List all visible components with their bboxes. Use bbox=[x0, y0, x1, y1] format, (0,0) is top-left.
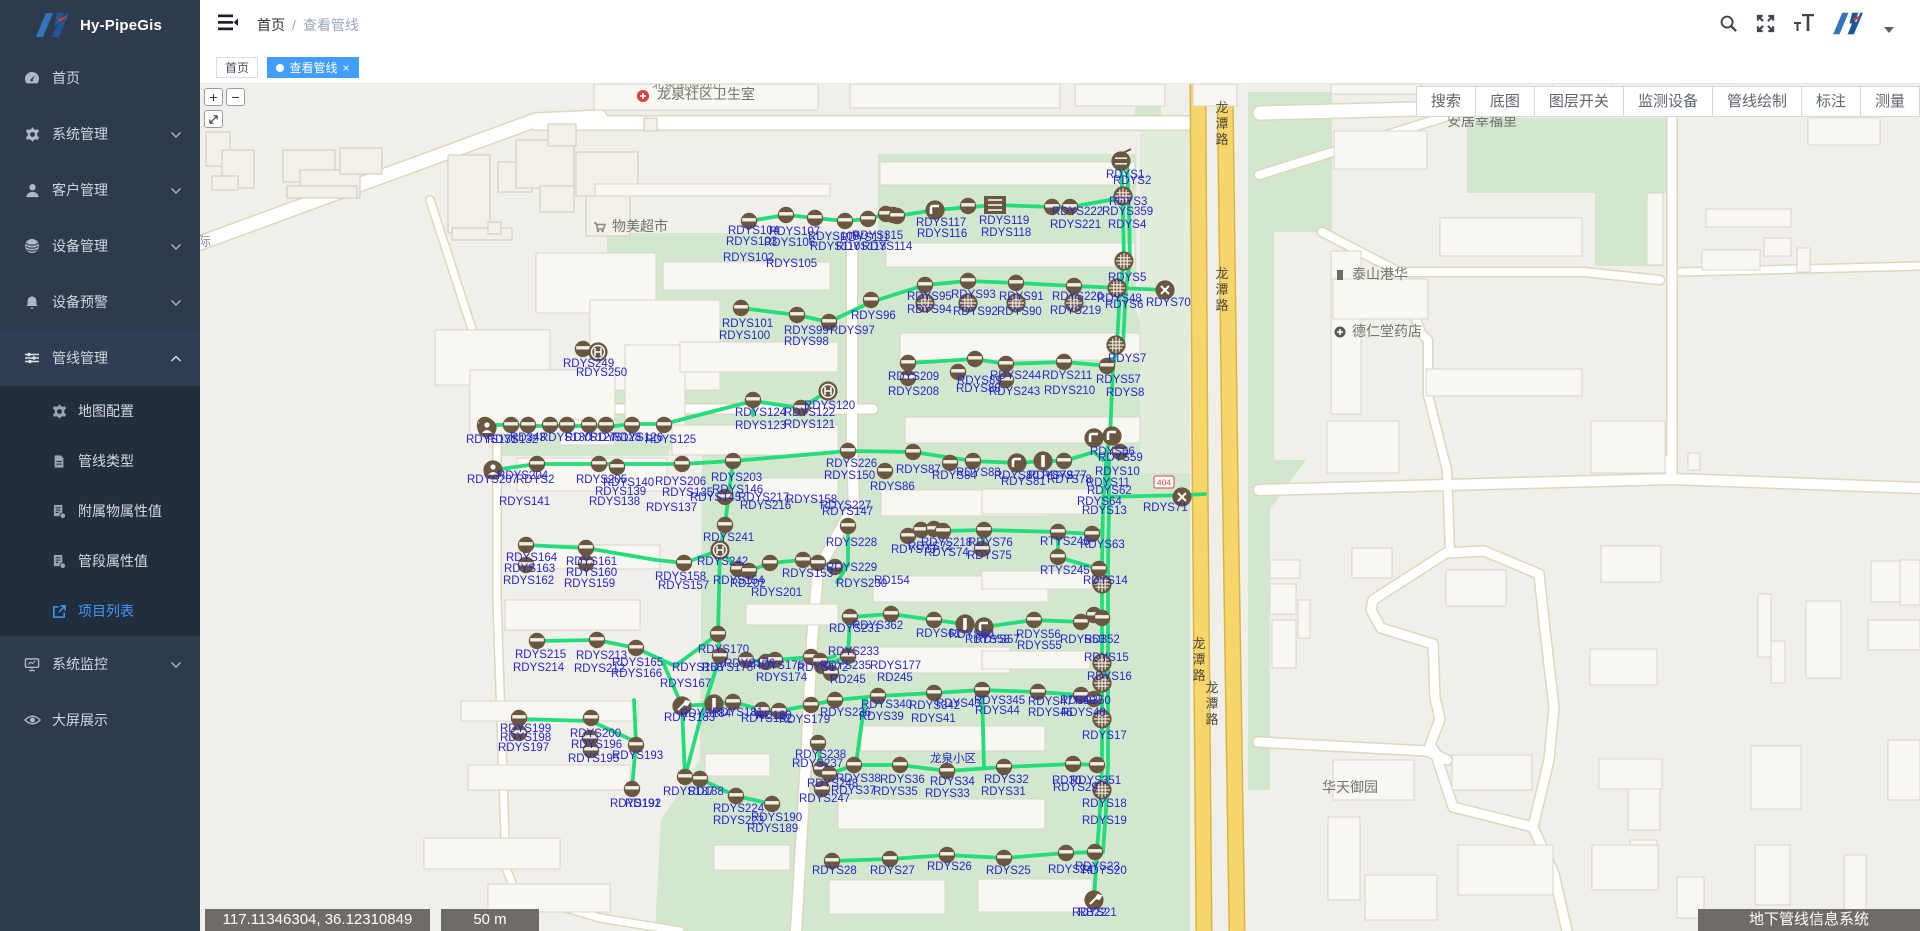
svg-text:RDYS170: RDYS170 bbox=[698, 644, 749, 656]
svg-text:RDYS91: RDYS91 bbox=[999, 291, 1044, 303]
svg-text:RDYS189: RDYS189 bbox=[747, 823, 798, 835]
svg-text:RDYS193: RDYS193 bbox=[612, 750, 663, 762]
svg-text:RDYS96: RDYS96 bbox=[851, 310, 896, 322]
svg-text:RDYS116: RDYS116 bbox=[917, 228, 967, 240]
svg-text:RDYS166: RDYS166 bbox=[611, 668, 662, 680]
svg-text:华天御园: 华天御园 bbox=[1322, 779, 1378, 795]
svg-text:RDYS362: RDYS362 bbox=[852, 620, 903, 632]
svg-text:RDYS27: RDYS27 bbox=[870, 865, 915, 877]
svg-text:RDYS244: RDYS244 bbox=[990, 370, 1042, 382]
svg-text:RDYS228: RDYS228 bbox=[826, 537, 877, 549]
svg-text:RDYS35: RDYS35 bbox=[873, 786, 918, 798]
svg-text:RDYS63: RDYS63 bbox=[1080, 539, 1125, 551]
svg-text:RDYS203: RDYS203 bbox=[711, 472, 762, 484]
svg-text:RD154: RD154 bbox=[874, 575, 910, 587]
svg-text:物美超市: 物美超市 bbox=[612, 218, 668, 234]
svg-text:RDYS220: RDYS220 bbox=[1052, 291, 1103, 303]
svg-text:龙: 龙 bbox=[1192, 636, 1205, 651]
svg-text:泰山港华: 泰山港华 bbox=[1352, 266, 1408, 282]
svg-text:RDYS241: RDYS241 bbox=[703, 532, 754, 544]
svg-text:RDYS6: RDYS6 bbox=[1105, 299, 1143, 311]
svg-text:RDYS92: RDYS92 bbox=[953, 306, 998, 318]
svg-text:RDYS359: RDYS359 bbox=[1102, 206, 1153, 218]
svg-text:RDYS2: RDYS2 bbox=[1113, 175, 1151, 187]
svg-text:RDYS214: RDYS214 bbox=[513, 662, 565, 674]
svg-text:RDYS121: RDYS121 bbox=[784, 419, 835, 431]
svg-text:RDYS138: RDYS138 bbox=[589, 496, 640, 508]
svg-text:RDYS157: RDYS157 bbox=[658, 580, 709, 592]
svg-text:RDYS118: RDYS118 bbox=[981, 227, 1031, 239]
svg-text:RDYS55: RDYS55 bbox=[1017, 640, 1062, 652]
svg-text:RDYS36: RDYS36 bbox=[880, 774, 925, 786]
svg-text:RDYS177: RDYS177 bbox=[870, 660, 921, 672]
svg-text:RDYS201: RDYS201 bbox=[751, 587, 802, 599]
svg-text:RDYS229: RDYS229 bbox=[826, 562, 877, 574]
svg-text:际: 际 bbox=[200, 234, 211, 249]
svg-text:潭: 潭 bbox=[1192, 652, 1205, 667]
svg-text:RDYS147: RDYS147 bbox=[822, 506, 873, 518]
svg-text:RDYS197: RDYS197 bbox=[498, 742, 549, 754]
svg-text:潭: 潭 bbox=[1215, 282, 1228, 297]
svg-text:RDYS226: RDYS226 bbox=[826, 458, 877, 470]
svg-text:RDYS97: RDYS97 bbox=[830, 325, 875, 337]
svg-text:RDYS77: RDYS77 bbox=[1042, 470, 1087, 482]
svg-text:路: 路 bbox=[1205, 712, 1218, 727]
svg-text:路: 路 bbox=[1192, 668, 1205, 683]
svg-text:RDYS210: RDYS210 bbox=[1044, 385, 1095, 397]
svg-text:RDYS44: RDYS44 bbox=[975, 705, 1020, 717]
svg-text:RDYS38: RDYS38 bbox=[836, 773, 881, 785]
svg-text:RDYS219: RDYS219 bbox=[1050, 305, 1101, 317]
svg-text:RDYS172: RDYS172 bbox=[797, 662, 848, 674]
svg-text:RDYS122: RDYS122 bbox=[784, 407, 835, 419]
svg-text:RDYS13: RDYS13 bbox=[1082, 505, 1127, 517]
svg-text:RDYS8: RDYS8 bbox=[1106, 387, 1144, 399]
svg-text:RDYS74: RDYS74 bbox=[924, 547, 969, 559]
svg-text:RDYS150: RDYS150 bbox=[824, 470, 875, 482]
svg-text:RDYS76: RDYS76 bbox=[968, 537, 1013, 549]
svg-text:RDYS31: RDYS31 bbox=[981, 786, 1026, 798]
svg-text:RD350: RD350 bbox=[1075, 695, 1111, 707]
svg-text:RDYS19: RDYS19 bbox=[1082, 815, 1127, 827]
svg-text:RDYS18: RDYS18 bbox=[1082, 798, 1127, 810]
svg-text:RDYS250: RDYS250 bbox=[576, 367, 627, 379]
svg-text:RDYS86: RDYS86 bbox=[870, 481, 915, 493]
svg-text:RDYS162: RDYS162 bbox=[503, 575, 554, 587]
svg-text:RDYS25: RDYS25 bbox=[986, 865, 1031, 877]
svg-text:RDYS33: RDYS33 bbox=[925, 788, 970, 800]
svg-text:RDYS242: RDYS242 bbox=[697, 556, 748, 568]
svg-text:RDYS34: RDYS34 bbox=[930, 776, 975, 788]
svg-text:RDYS237: RDYS237 bbox=[792, 758, 843, 770]
svg-text:RDYS71: RDYS71 bbox=[1143, 502, 1188, 514]
svg-text:404: 404 bbox=[1157, 478, 1171, 488]
svg-text:RDYS28: RDYS28 bbox=[812, 865, 857, 877]
svg-text:RDYS16: RDYS16 bbox=[1087, 671, 1132, 683]
svg-text:RB22: RB22 bbox=[1078, 907, 1107, 919]
svg-text:RDYS41: RDYS41 bbox=[911, 713, 956, 725]
svg-text:RDYS153: RDYS153 bbox=[782, 568, 833, 580]
svg-text:RDYS216: RDYS216 bbox=[740, 500, 791, 512]
svg-text:RDYS20: RDYS20 bbox=[1082, 865, 1127, 877]
svg-text:龙: 龙 bbox=[1205, 680, 1218, 695]
svg-text:RDYS233: RDYS233 bbox=[828, 646, 879, 658]
svg-text:RDYS75: RDYS75 bbox=[967, 550, 1012, 562]
svg-text:RDYS145: RDYS145 bbox=[690, 492, 741, 504]
svg-text:潭: 潭 bbox=[1205, 696, 1218, 711]
svg-text:RDYS57: RDYS57 bbox=[975, 634, 1020, 646]
svg-text:RD188: RD188 bbox=[688, 786, 724, 798]
svg-text:RDYS159: RDYS159 bbox=[564, 578, 615, 590]
svg-text:RDYS211: RDYS211 bbox=[1042, 370, 1092, 382]
svg-text:RDYS29: RDYS29 bbox=[1053, 782, 1098, 794]
svg-text:RDYS4: RDYS4 bbox=[1108, 219, 1147, 231]
svg-text:RDYS119: RDYS119 bbox=[979, 215, 1029, 227]
svg-text:RDYS98: RDYS98 bbox=[784, 336, 829, 348]
svg-text:RDYS14: RDYS14 bbox=[1083, 575, 1128, 587]
svg-text:RDYS208: RDYS208 bbox=[888, 386, 939, 398]
svg-text:龙: 龙 bbox=[1215, 266, 1228, 281]
svg-text:RDYS163: RDYS163 bbox=[504, 563, 555, 575]
svg-text:RD245: RD245 bbox=[830, 674, 866, 686]
svg-text:RDYS222: RDYS222 bbox=[1052, 206, 1103, 218]
svg-text:RDYS209: RDYS209 bbox=[888, 371, 939, 383]
svg-text:RDYS101: RDYS101 bbox=[722, 318, 773, 330]
svg-text:RDYS221: RDYS221 bbox=[1050, 219, 1101, 231]
svg-text:路: 路 bbox=[1215, 298, 1228, 313]
svg-text:龙: 龙 bbox=[1215, 100, 1228, 115]
svg-text:RDYS95: RDYS95 bbox=[907, 291, 952, 303]
svg-text:RDYS124: RDYS124 bbox=[735, 407, 787, 419]
svg-text:RDYS167: RDYS167 bbox=[660, 678, 711, 690]
svg-text:RDYS113: RDYS113 bbox=[836, 241, 886, 253]
svg-text:德仁堂药店: 德仁堂药店 bbox=[1352, 323, 1422, 339]
svg-text:RD191: RD191 bbox=[625, 798, 661, 810]
svg-text:RDYS70: RDYS70 bbox=[1146, 297, 1191, 309]
svg-text:潭: 潭 bbox=[1215, 116, 1228, 131]
svg-text:RDYS125: RDYS125 bbox=[645, 434, 696, 446]
svg-text:RDYS26: RDYS26 bbox=[927, 861, 972, 873]
svg-text:RDYS5: RDYS5 bbox=[1108, 272, 1146, 284]
svg-text:RDYS243: RDYS243 bbox=[989, 386, 1040, 398]
svg-text:RDYS57: RDYS57 bbox=[1096, 374, 1141, 386]
svg-text:RDYS94: RDYS94 bbox=[907, 304, 952, 316]
svg-text:RDYS2: RDYS2 bbox=[516, 474, 554, 486]
svg-text:RDYS32: RDYS32 bbox=[984, 774, 1029, 786]
svg-text:RDYS90: RDYS90 bbox=[997, 306, 1042, 318]
svg-text:RD352: RD352 bbox=[1084, 634, 1120, 646]
svg-text:RDYS215: RDYS215 bbox=[515, 649, 566, 661]
svg-text:龙泉小区: 龙泉小区 bbox=[930, 751, 976, 765]
svg-text:RDYS105: RDYS105 bbox=[766, 258, 817, 270]
svg-text:RD245: RD245 bbox=[877, 672, 913, 684]
svg-text:RDYS37: RDYS37 bbox=[831, 785, 876, 797]
svg-text:RDYS17: RDYS17 bbox=[1082, 730, 1127, 742]
svg-text:路: 路 bbox=[1215, 132, 1228, 147]
svg-text:RDYS340: RDYS340 bbox=[861, 699, 912, 711]
svg-text:RDYS48: RDYS48 bbox=[1061, 707, 1106, 719]
svg-text:RDYS59: RDYS59 bbox=[1098, 452, 1143, 464]
svg-text:RDYS100: RDYS100 bbox=[719, 330, 770, 342]
svg-text:北泉街道办迁: 北泉街道办迁 bbox=[652, 84, 724, 91]
svg-text:RDYS123: RDYS123 bbox=[735, 420, 786, 432]
svg-text:RDYS15: RDYS15 bbox=[1084, 652, 1129, 664]
svg-text:RDYS93: RDYS93 bbox=[951, 289, 996, 301]
svg-text:RDYS39: RDYS39 bbox=[859, 711, 904, 723]
svg-text:RDYS141: RDYS141 bbox=[499, 496, 550, 508]
svg-text:RDYS7: RDYS7 bbox=[1108, 353, 1146, 365]
